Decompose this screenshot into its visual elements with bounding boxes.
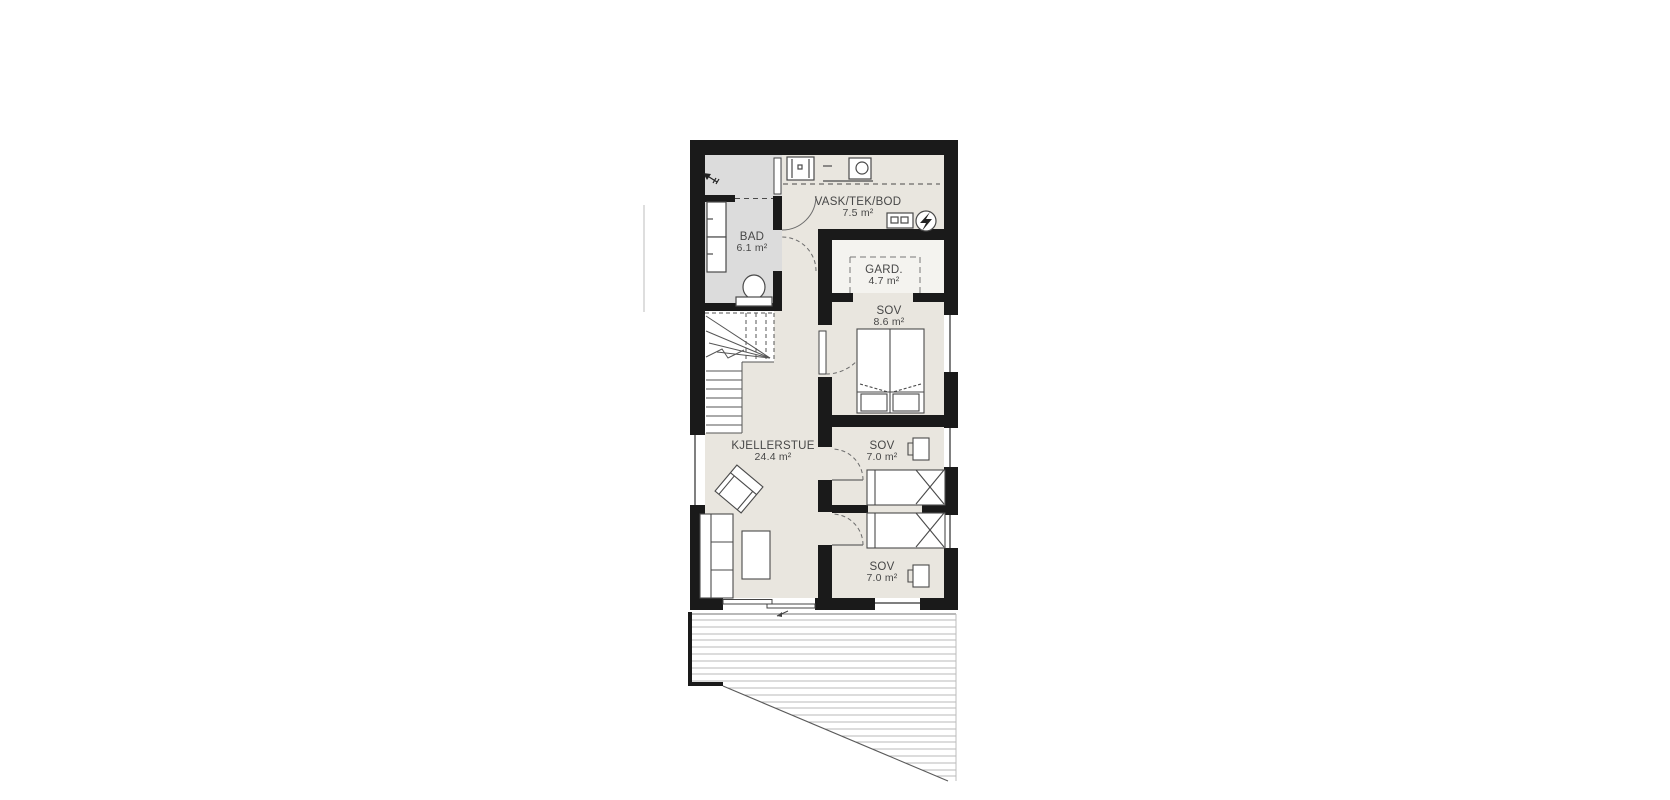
- coffee-table-icon: [742, 531, 770, 579]
- terrace-deck: [688, 611, 956, 781]
- laundry-sink-icon: [787, 157, 814, 180]
- floor-plan-svg: [0, 0, 1670, 800]
- water-heater-icon: [887, 213, 913, 228]
- sofa-icon: [700, 514, 733, 598]
- floor-plan: BAD 6.1 m² VASK/TEK/BOD 7.5 m² GARD. 4.7…: [0, 0, 1670, 800]
- single-bed-south-icon: [867, 513, 945, 548]
- sliding-door-icon: [723, 600, 815, 609]
- vanity-cabinet-icon: [707, 202, 726, 272]
- entry-door-leaf: [774, 158, 781, 194]
- washing-machine-icon: [849, 158, 871, 179]
- electrical-panel-icon: [916, 211, 936, 231]
- single-bed-mid-icon: [867, 470, 945, 505]
- double-bed-icon: [857, 329, 924, 413]
